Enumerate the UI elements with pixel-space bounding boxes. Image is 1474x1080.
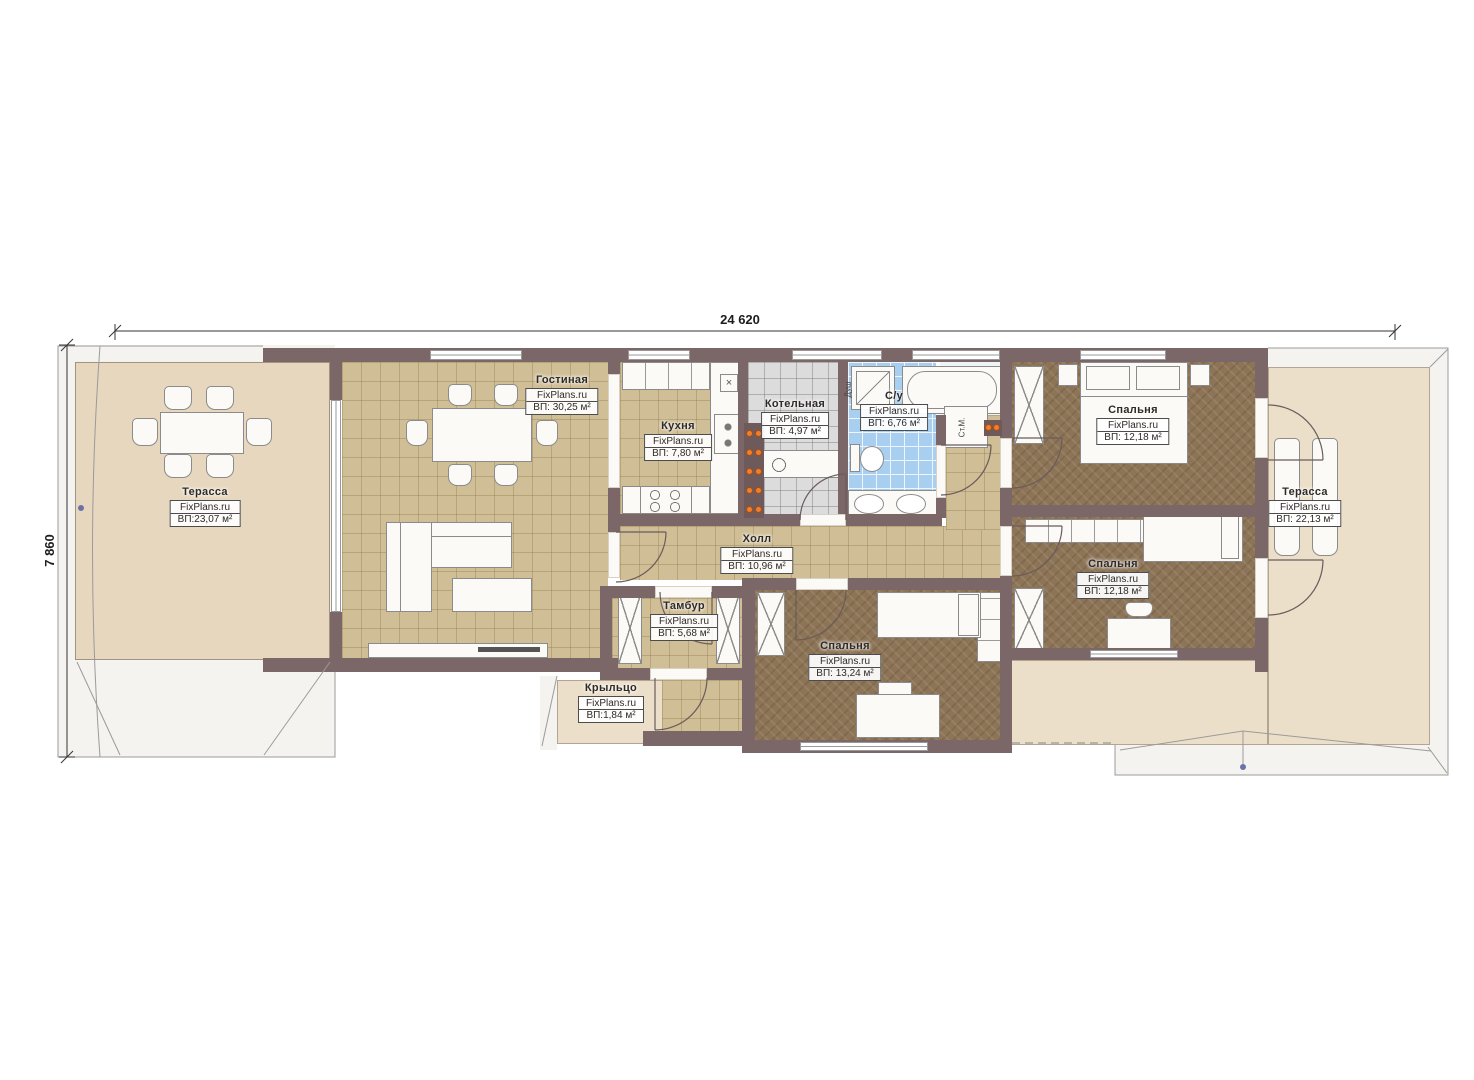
window-boiler-top xyxy=(792,350,882,360)
heat-dot xyxy=(746,449,753,456)
floor-plan: × Душ Ст.М. xyxy=(0,0,1474,1080)
wall-right-b xyxy=(1255,458,1268,558)
opening-living-kitchen xyxy=(608,374,620,488)
wall-mid-b xyxy=(846,514,942,526)
wall-bath-corridor-b xyxy=(936,498,946,518)
room-area: ВП: 7,80 м² xyxy=(645,448,711,460)
toilet-tank xyxy=(850,444,860,472)
shower-label: Душ xyxy=(844,381,853,397)
wardrobe xyxy=(618,592,642,664)
room-label-terrace-left: Терасса FixPlans.ruВП:23,07 м² xyxy=(170,486,241,527)
room-area: ВП: 4,97 м² xyxy=(762,426,828,438)
room-label-bedroom-top: Спальня FixPlans.ruВП: 12,18 м² xyxy=(1096,404,1169,445)
room-area: ВП: 22,13 м² xyxy=(1269,514,1340,526)
window-bedroom-bottom xyxy=(800,742,928,751)
nightstand xyxy=(1190,364,1210,386)
dining-table xyxy=(432,408,532,462)
wall-living-bottom xyxy=(263,658,618,672)
room-label-bedroom-bottom: Спальня FixPlans.ruВП: 13,24 м² xyxy=(808,640,881,681)
chair xyxy=(206,454,234,478)
room-area: ВП: 13,24 м² xyxy=(809,668,880,680)
room-label-bedroom-mid: Спальня FixPlans.ruВП: 12,18 м² xyxy=(1076,558,1149,599)
pillow xyxy=(1221,515,1239,559)
watermark: FixPlans.ru xyxy=(762,413,828,426)
wall-mid-a xyxy=(618,514,800,526)
watermark: FixPlans.ru xyxy=(579,697,643,710)
porch-tile-floor xyxy=(662,680,742,732)
pillow xyxy=(958,594,979,636)
pillow xyxy=(1136,366,1180,390)
wall-bedroom-bottom-left xyxy=(742,578,755,746)
kitchen-counter-top xyxy=(622,362,710,390)
door-sill xyxy=(1255,558,1268,618)
vent-symbol: × xyxy=(720,374,738,392)
kitchen-sink xyxy=(714,414,741,454)
dimension-width: 24 620 xyxy=(720,312,760,327)
wall-right-c xyxy=(1255,618,1268,672)
closet-shelves xyxy=(1025,519,1145,543)
watermark: FixPlans.ru xyxy=(721,548,792,561)
boiler-unit xyxy=(762,450,846,478)
watermark: FixPlans.ru xyxy=(861,405,927,418)
wall-tambur-bottom-b xyxy=(707,668,742,680)
window-kitchen-top xyxy=(628,350,690,360)
nightstand xyxy=(1058,364,1078,386)
door-sill xyxy=(936,445,946,498)
wall-bedrooms-left-c xyxy=(1000,576,1012,753)
wall-bedrooms-divider xyxy=(1012,505,1255,517)
wardrobe xyxy=(1014,366,1044,444)
room-label-hall: Холл FixPlans.ruВП: 10,96 м² xyxy=(720,533,793,574)
window-living-top xyxy=(430,350,522,360)
coffee-table xyxy=(452,578,532,612)
heat-dot xyxy=(985,424,992,431)
chair xyxy=(536,420,558,446)
chair xyxy=(164,386,192,410)
door-sill xyxy=(1000,526,1012,576)
sofa-chaise xyxy=(386,522,432,612)
chair xyxy=(448,464,472,486)
heat-dot xyxy=(746,468,753,475)
washing-machine-label: Ст.М. xyxy=(957,418,966,438)
chair xyxy=(206,386,234,410)
watermark: FixPlans.ru xyxy=(1097,419,1168,432)
wall-left-upper xyxy=(330,348,342,400)
room-area: ВП: 30,25 м² xyxy=(526,402,597,414)
room-label-tambur: Тамбур FixPlans.ruВП: 5,68 м² xyxy=(650,600,718,641)
watermark: FixPlans.ru xyxy=(1269,501,1340,514)
room-label-porch: Крыльцо FixPlans.ruВП:1,84 м² xyxy=(578,682,644,723)
watermark: FixPlans.ru xyxy=(651,615,717,628)
heat-dot xyxy=(746,506,753,513)
wall-bedrooms-left-b xyxy=(1000,488,1012,526)
heat-dot xyxy=(746,430,753,437)
watermark: FixPlans.ru xyxy=(171,501,240,514)
room-label-bath: С/у FixPlans.ruВП: 6,76 м² xyxy=(860,390,928,431)
wardrobe xyxy=(757,592,785,656)
pillow xyxy=(1086,366,1130,390)
toilet-bowl xyxy=(860,446,884,472)
door-sill xyxy=(800,514,846,526)
window-bedroom-mid-bottom xyxy=(1090,650,1178,658)
room-area: ВП: 12,18 м² xyxy=(1077,586,1148,598)
room-label-boiler: Котельная FixPlans.ruВП: 4,97 м² xyxy=(761,398,829,439)
chair xyxy=(164,454,192,478)
room-area: ВП: 12,18 м² xyxy=(1097,432,1168,444)
wall-bath-corridor-a xyxy=(936,415,946,445)
stove xyxy=(640,486,692,514)
wall-left-lower xyxy=(330,612,342,672)
wall-right-a xyxy=(1255,348,1268,398)
wall-porch-bottom xyxy=(643,731,755,746)
dimension-height: 7 860 xyxy=(42,534,57,567)
door-sill xyxy=(655,586,712,598)
room-label-living: Гостиная FixPlans.ruВП: 30,25 м² xyxy=(525,374,598,415)
room-area: ВП: 5,68 м² xyxy=(651,628,717,640)
wall-boiler-bath xyxy=(838,348,848,518)
room-area: ВП:23,07 м² xyxy=(171,514,240,526)
desk xyxy=(856,694,940,738)
window-bath-top xyxy=(912,350,1000,360)
wardrobe xyxy=(716,594,740,664)
door-sill xyxy=(1000,438,1012,488)
wall-tambur-left xyxy=(600,586,612,680)
roof-outline-porch xyxy=(540,676,557,750)
room-area: ВП: 6,76 м² xyxy=(861,418,927,430)
chair xyxy=(132,418,158,446)
room-area: ВП: 10,96 м² xyxy=(721,561,792,573)
wall-living-kitchen-a xyxy=(608,348,620,374)
window-living-terrace xyxy=(331,400,341,612)
sink xyxy=(854,494,884,514)
window-bedroom-top xyxy=(1080,350,1166,360)
room-label-kitchen: Кухня FixPlans.ruВП: 7,80 м² xyxy=(644,420,712,461)
wardrobe xyxy=(1014,588,1044,652)
door-sill xyxy=(796,578,848,590)
wall-tambur-bottom-a xyxy=(600,668,650,680)
door-sill xyxy=(608,532,620,578)
chair xyxy=(494,384,518,406)
door-sill xyxy=(650,668,707,680)
hall-floor xyxy=(620,526,1008,580)
desk-chair xyxy=(1125,602,1153,617)
sink xyxy=(896,494,926,514)
tv xyxy=(478,647,540,652)
watermark: FixPlans.ru xyxy=(1077,573,1148,586)
terrace-right-bottom-floor xyxy=(1012,660,1268,745)
room-label-terrace-right: Терасса FixPlans.ruВП: 22,13 м² xyxy=(1268,486,1341,527)
wall-bedroom-bottom-top-b xyxy=(848,578,1012,590)
chair xyxy=(246,418,272,446)
heat-dot xyxy=(746,487,753,494)
terrace-table xyxy=(160,412,244,454)
door-sill xyxy=(1255,398,1268,458)
watermark: FixPlans.ru xyxy=(526,389,597,402)
chair xyxy=(448,384,472,406)
watermark: FixPlans.ru xyxy=(645,435,711,448)
watermark: FixPlans.ru xyxy=(809,655,880,668)
terrace-right-floor xyxy=(1268,367,1430,745)
chair xyxy=(406,420,428,446)
desk-shelf xyxy=(878,682,912,695)
chair xyxy=(494,464,518,486)
room-area: ВП:1,84 м² xyxy=(579,710,643,722)
